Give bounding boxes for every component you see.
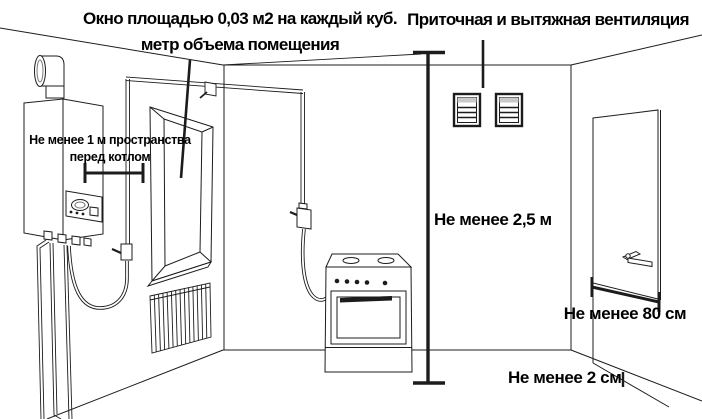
- boiler-gas-valve-icon: [112, 244, 132, 260]
- boiler-clearance-label-line2: перед котлом: [28, 151, 192, 165]
- stove-gas-valve-icon: [290, 203, 311, 229]
- window-rule-title-line1: Окно площадью 0,03 м2 на каждый куб.: [58, 10, 422, 29]
- installation-diagram: Окно площадью 0,03 м2 на каждый куб. мет…: [0, 0, 702, 419]
- ventilation-rule-title: Приточная и вытяжная вентиляция: [398, 11, 698, 30]
- boiler-clearance-label-line1: Не менее 1 м пространства: [28, 134, 192, 148]
- door-gap-label: Не менее 2 см: [508, 369, 621, 388]
- stove-gas-hose-icon: [303, 229, 327, 300]
- door-icon: [593, 110, 669, 407]
- radiator-icon: [150, 283, 211, 353]
- flue-pipe-icon: [35, 56, 65, 99]
- vent-grille-icon: [496, 94, 522, 126]
- door-width-label: Не менее 80 см: [558, 305, 692, 324]
- ceiling-height-label: Не менее 2,5 м: [434, 211, 552, 230]
- stove-icon: [325, 254, 412, 372]
- boiler-gas-hose-icon: [69, 246, 127, 308]
- boiler-pipes-icon: [37, 240, 72, 419]
- vent-grille-icon: [454, 94, 480, 126]
- room-diagram: [0, 0, 702, 419]
- window-rule-title-line2: метр объема помещения: [58, 36, 422, 55]
